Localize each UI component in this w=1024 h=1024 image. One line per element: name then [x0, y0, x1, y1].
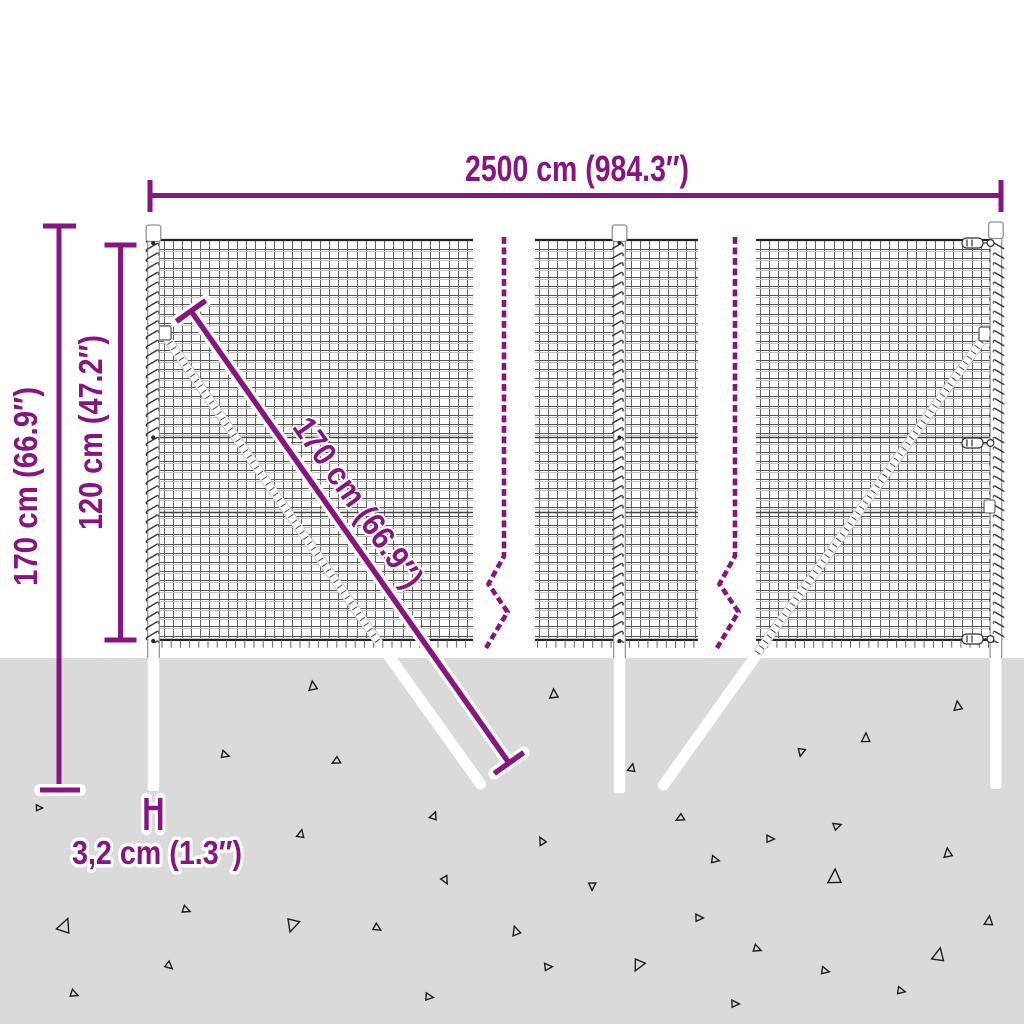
svg-text:120 cm (47.2″): 120 cm (47.2″) — [72, 335, 109, 530]
svg-text:170 cm (66.9″): 170 cm (66.9″) — [7, 387, 44, 586]
svg-text:2500 cm (984.3″): 2500 cm (984.3″) — [465, 148, 689, 189]
svg-text:3,2 cm (1.3″): 3,2 cm (1.3″) — [72, 834, 242, 871]
